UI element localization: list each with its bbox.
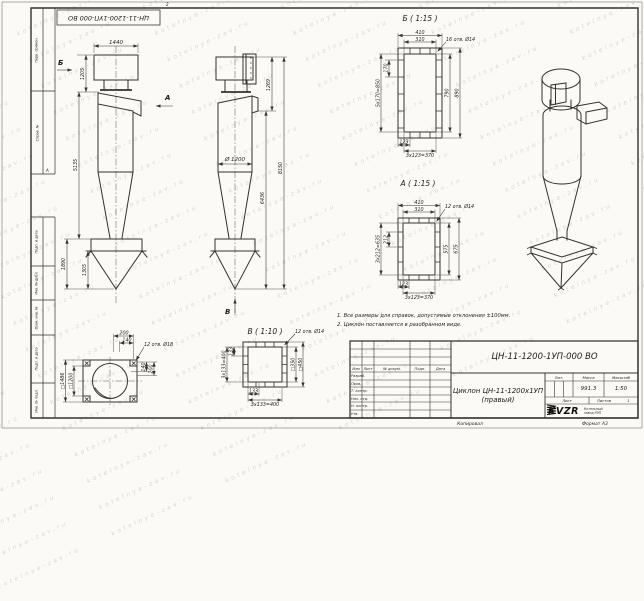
dim-b-inner-w: 310 <box>415 37 424 43</box>
dim-b-outer-w: 410 <box>415 30 424 36</box>
view-arrow-v: В <box>225 308 230 316</box>
holes-v-label: 12 отв. Ø14 <box>295 328 324 335</box>
dim-a-inner-w: 310 <box>414 207 423 213</box>
company-name: Котельный завод РЭП <box>584 407 603 415</box>
dim-a-pitch-total: 3х212=635 <box>376 235 382 263</box>
holes-a-label: 12 отв. Ø14 <box>445 203 474 210</box>
sheets-label: Листов <box>589 397 619 404</box>
company-name-line2: завод РЭП <box>584 411 603 415</box>
section-a: А ( 1:15 ) 410 310 12 отв. Ø14 212 3х212… <box>376 179 475 301</box>
dim-v-square-outer: □450 <box>298 358 304 372</box>
sheet: kotelnye-zav.ru kotelnye-zav.ru kotelnye… <box>0 0 644 430</box>
sheets-value: 1 <box>619 397 638 404</box>
dim-side-lower-h: 6436 <box>260 192 266 204</box>
dim-b-bottom-total: 3х123=370 <box>406 153 434 159</box>
view-isometric <box>527 69 607 290</box>
dim-a-outer-h: 675 <box>454 244 460 253</box>
footer-format: Формат А3 <box>560 419 630 429</box>
col-data: Дата <box>430 365 451 372</box>
section-b-title: Б ( 1:15 ) <box>403 14 438 23</box>
row-razrab: Разраб. <box>351 372 375 380</box>
sheet-label: Лист <box>545 397 589 404</box>
col-podp: Подп. <box>410 365 430 372</box>
titleblock-designation: ЦН-11-1200-1УП-000 ВО <box>451 341 638 373</box>
margin-label-podp-data-2: Подп. и дата <box>31 335 43 383</box>
row-n-kontr: Н. контр. <box>351 402 375 410</box>
margin-label-vzam-inv: Взам. инв. № <box>31 300 43 335</box>
section-b: Б ( 1:15 ) 410 310 16 отв. Ø14 170 5х170… <box>376 14 476 159</box>
row-nach-otd: Нач. отд. <box>351 395 375 402</box>
dim-a-bottom-total: 3х123=370 <box>405 295 433 301</box>
dim-front-top-h: 1205 <box>80 68 86 80</box>
section-a-title: А ( 1:15 ) <box>400 179 436 188</box>
dim-b-pitch: 170 <box>384 63 390 72</box>
view-front: 1440 1205 5135 1890 1305 Б А <box>57 40 173 303</box>
view-arrow-b: Б <box>58 59 63 67</box>
holes-b-label: 16 отв. Ø14 <box>446 36 475 43</box>
dim-front-bunker-h: 1890 <box>61 258 67 270</box>
margin-label-sprav-no: Справ. № <box>31 91 43 174</box>
row-prov: Пров. <box>351 380 375 387</box>
dim-b-bottom: 123 <box>399 140 408 146</box>
scale-value: 1:50 <box>604 381 638 397</box>
col-izm: Изм <box>350 365 362 372</box>
zone-top-label: 2 <box>166 2 169 7</box>
holes-top-label: 12 отв. Ø18 <box>144 341 173 348</box>
dim-v-bottom-total: 3х133=400 <box>251 402 279 408</box>
stamp-designation: ЦН-11-1200-1УП-000 ВО <box>57 10 160 25</box>
dim-front-body-h: 5135 <box>73 159 79 171</box>
dim-v-left: 133 <box>229 347 235 356</box>
dim-v-left-total: 3х133=400 <box>222 350 228 378</box>
dim-a-outer-w: 410 <box>414 200 423 206</box>
dim-b-outer-h: 890 <box>455 88 461 97</box>
dim-front-width: 1440 <box>109 40 123 46</box>
dim-side-outlet-h: 1269 <box>266 79 272 91</box>
mass-value: 991.3 <box>573 381 604 397</box>
spring-icon <box>546 404 557 416</box>
dim-top-square-inner: □1200 <box>69 373 75 390</box>
dim-top-200: 200 <box>119 331 128 337</box>
zone-left-label: А <box>45 168 49 173</box>
screenshot-root: { "sheet": { "stamp": "ЦН-11-1200-1УП-00… <box>0 0 644 430</box>
margin-label-inv-dubl: Инв. № дубл. <box>31 266 43 300</box>
mass-label: Масса <box>573 373 604 381</box>
company-logo-cell: KVZR Котельный завод РЭП <box>546 404 639 418</box>
dim-a-bottom: 123 <box>399 282 408 288</box>
margin-label-podp-data-1: Подп. и дата <box>31 217 43 266</box>
section-v-title: В ( 1:10 ) <box>248 327 283 336</box>
dim-b-pitch-total: 5х170=850 <box>376 79 382 107</box>
titleblock-name-line1: Циклон ЦН-11-1200х1УП <box>453 387 543 396</box>
dim-side-diameter: Ø 1200 <box>224 156 246 163</box>
col-list: Лист <box>362 365 374 372</box>
view-side: Ø 1200 1269 6436 8150 В <box>210 46 287 318</box>
lit-label: Лит. <box>545 373 573 381</box>
dim-front-cone-h: 1305 <box>82 264 88 276</box>
view-top: 200 140 12 отв. Ø18 140 200 □1486 □1200 <box>60 331 173 407</box>
dim-v-square-inner: □350 <box>291 358 297 372</box>
note-line-1: 1. Все размеры для справок, допустимые о… <box>337 312 632 321</box>
dim-top-square-outer: □1486 <box>60 373 66 390</box>
margin-label-perv-primen: Перв. примен. <box>31 8 43 91</box>
row-t-kontr: Т. контр. <box>351 387 375 395</box>
col-doc: № докум. <box>374 365 410 372</box>
dim-top-right-200: 200 <box>149 364 155 373</box>
notes: 1. Все размеры для справок, допустимые о… <box>337 312 632 330</box>
footer-copied: Копировал <box>430 419 510 429</box>
titleblock-name-line2: (правый) <box>482 396 515 405</box>
dim-top-right-140: 140 <box>141 362 147 371</box>
dim-v-bottom: 133 <box>249 389 258 395</box>
dim-side-total-h: 8150 <box>278 162 284 174</box>
dim-a-inner-h: 575 <box>444 244 450 253</box>
dim-b-inner-h: 790 <box>445 88 451 97</box>
view-arrow-a: А <box>164 94 170 102</box>
section-v: В ( 1:10 ) 12 отв. Ø14 133 3х133=400 □35… <box>222 327 325 408</box>
margin-label-inv-podl: Инв. № подл. <box>31 383 43 418</box>
scale-label: Масштаб <box>604 373 638 381</box>
dim-top-140: 140 <box>122 338 131 344</box>
dim-a-pitch: 212 <box>384 235 390 244</box>
note-line-2: 2. Циклон поставляется в разобранном вид… <box>337 321 632 330</box>
row-utv: Утв. <box>351 410 375 418</box>
